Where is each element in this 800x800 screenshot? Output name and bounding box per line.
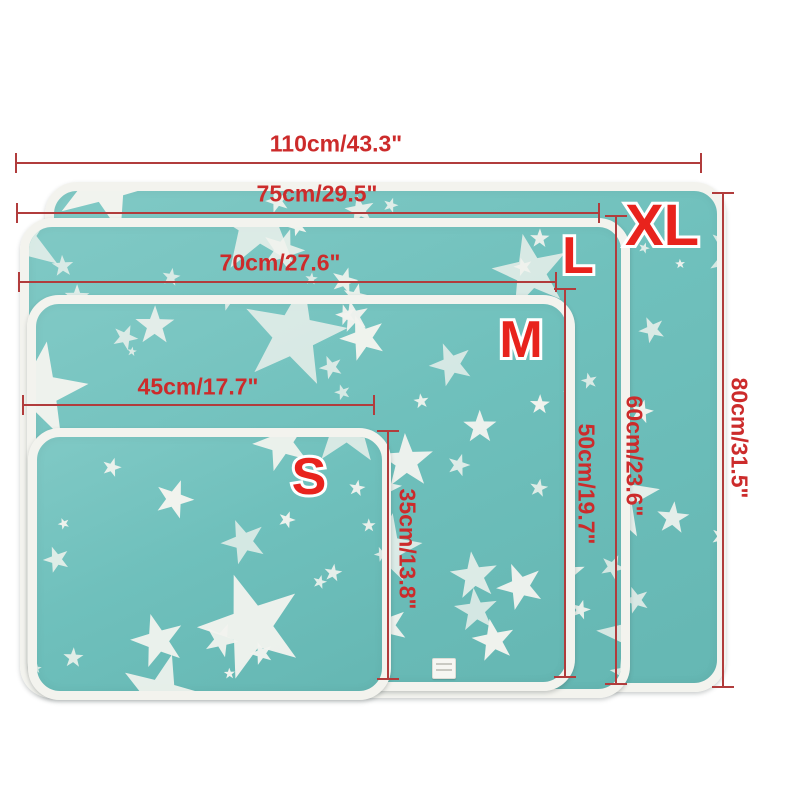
dim-line-width-l	[16, 212, 600, 214]
dim-label-width-l: 75cm/29.5"	[257, 181, 378, 208]
product-size-diagram: 110cm/43.3" 75cm/29.5" 70cm/27.6" 45cm/1…	[0, 0, 800, 800]
dim-line-height-l	[615, 215, 617, 685]
mat-s	[28, 428, 391, 700]
dim-line-width-s	[22, 404, 375, 406]
care-tag	[432, 658, 456, 679]
size-label-s: S	[292, 451, 327, 503]
size-label-m: M	[499, 314, 542, 366]
dim-line-height-m	[564, 288, 566, 678]
dim-line-width-xl	[15, 162, 702, 164]
dim-label-height-m: 50cm/19.7"	[573, 424, 600, 545]
dim-label-height-s: 35cm/13.8"	[394, 489, 421, 610]
dim-label-width-xl: 110cm/43.3"	[270, 131, 402, 158]
size-label-l: L	[562, 230, 594, 282]
dim-line-width-m	[18, 281, 557, 283]
dim-label-height-xl: 80cm/31.5"	[726, 378, 753, 499]
star-pattern	[37, 437, 382, 691]
dim-label-width-s: 45cm/17.7"	[138, 374, 259, 401]
dim-line-height-s	[387, 430, 389, 680]
dim-label-height-l: 60cm/23.6"	[621, 396, 648, 517]
dim-label-width-m: 70cm/27.6"	[220, 250, 341, 277]
size-label-xl: XL	[625, 197, 699, 255]
dim-line-height-xl	[722, 192, 724, 688]
